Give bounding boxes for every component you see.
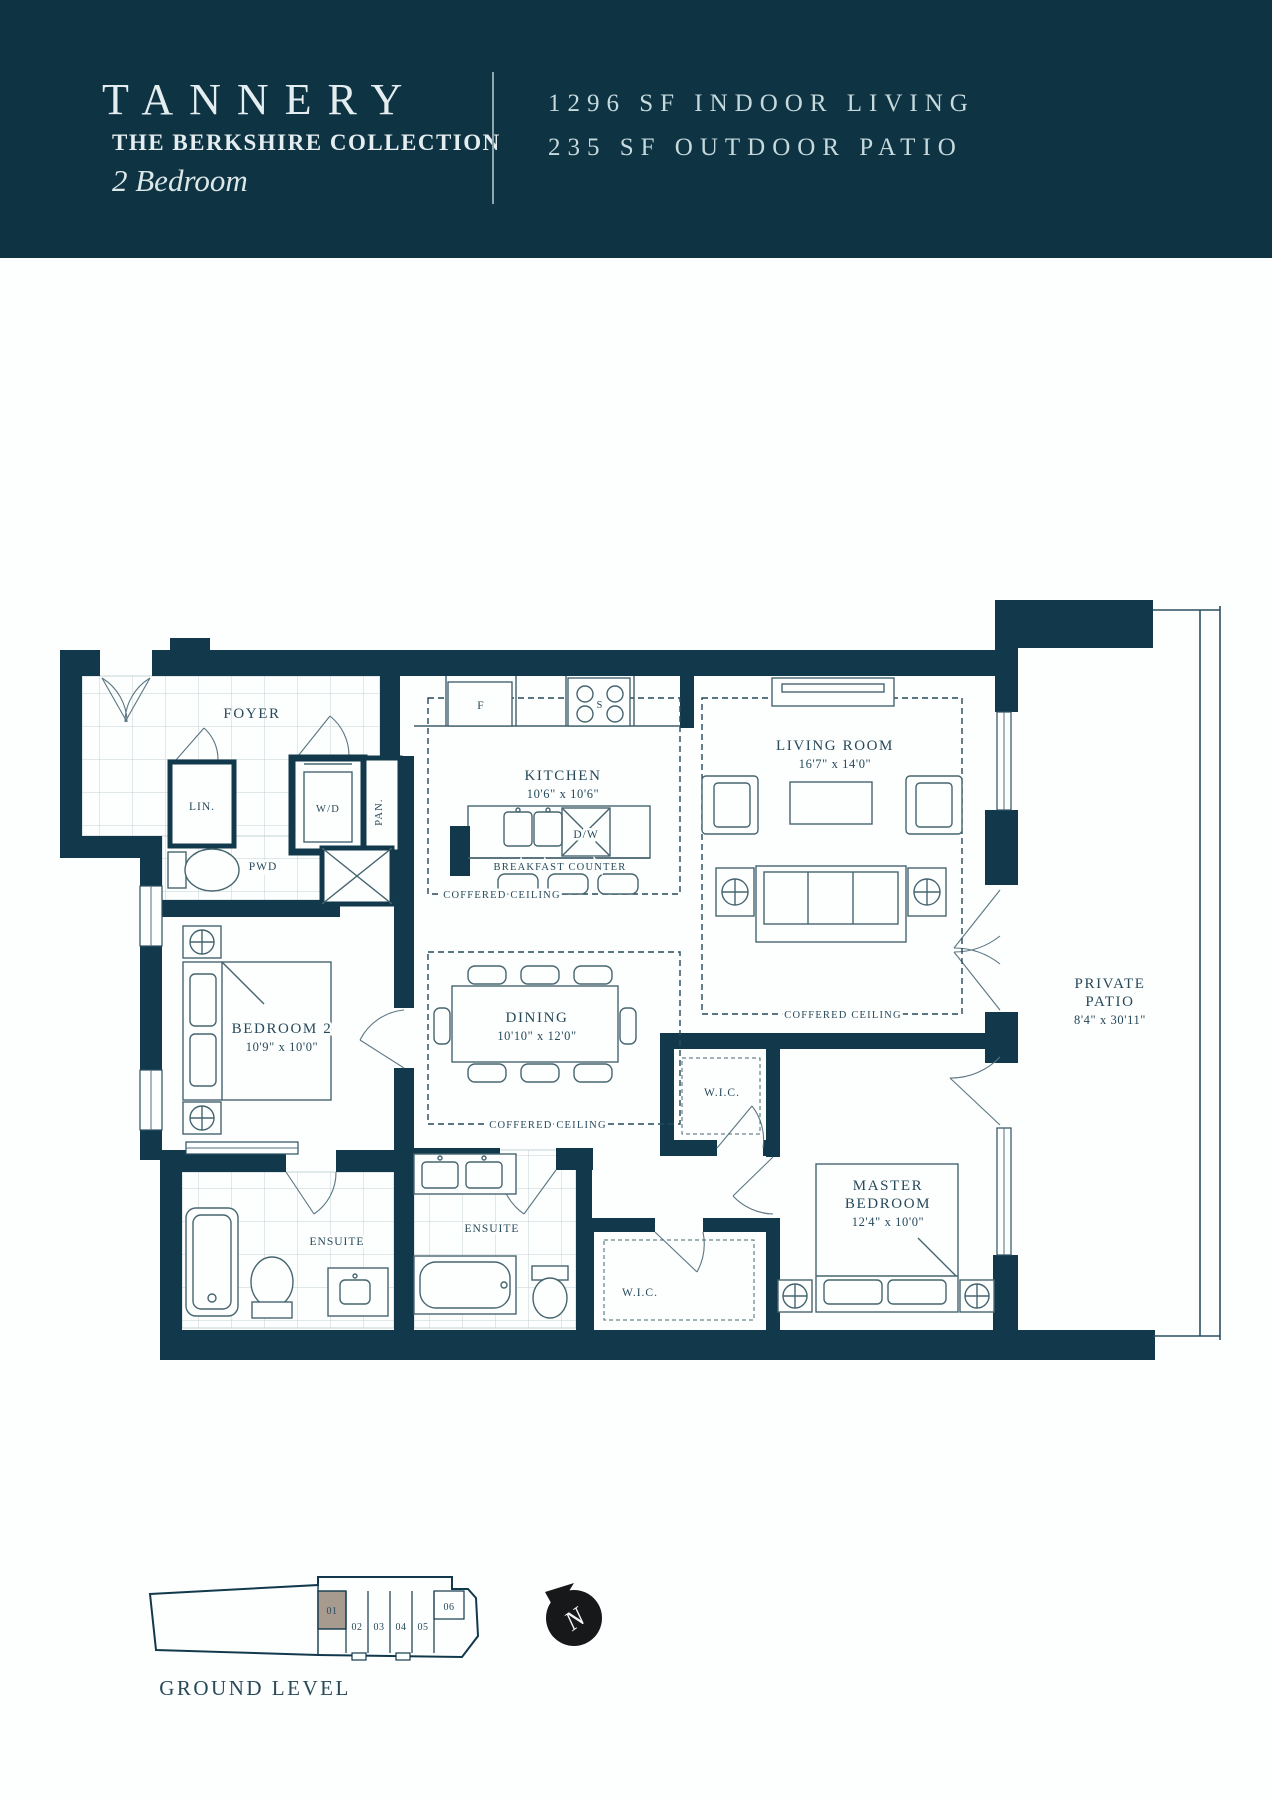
dining-dims: 10'10" x 12'0" <box>497 1029 576 1043</box>
floor-plan: FOYER LIN. W/D PAN. PWD KITCHEN 10'6" x … <box>0 0 1272 1800</box>
keyplan-unit-03-label: 03 <box>374 1622 385 1633</box>
private-patio-label-line2: PATIO <box>1085 994 1134 1010</box>
keyplan-unit-01-label: 01 <box>327 1606 338 1617</box>
keyplan-unit-05-label: 05 <box>418 1622 429 1633</box>
sofa-icon <box>756 866 906 942</box>
coffered-ceiling-label-living: COFFERED CEILING <box>784 1010 902 1021</box>
private-patio-dims: 8'4" x 30'11" <box>1074 1013 1146 1027</box>
side-table-lamp-right-icon <box>908 868 946 916</box>
keyplan-building-outline <box>150 1577 478 1657</box>
master-bedroom-label-line1: MASTER <box>853 1178 923 1194</box>
linen-label: LIN. <box>189 801 215 813</box>
pantry-label: PAN. <box>374 798 385 825</box>
foyer-label: FOYER <box>223 706 280 722</box>
washer-dryer-label: W/D <box>316 804 340 815</box>
stove-label: S <box>596 700 603 711</box>
powder-toilet-icon <box>168 849 239 891</box>
ensuite2-toilet-icon <box>532 1266 568 1318</box>
master-bedroom-label-line2: BEDROOM <box>845 1196 931 1212</box>
wic1-label: W.I.C. <box>704 1087 740 1099</box>
coffered-ceiling-label-dining: COFFERED CEILING <box>489 1120 607 1131</box>
ensuite2-tub-icon <box>414 1256 516 1314</box>
kitchen-dims: 10'6" x 10'6" <box>527 787 600 801</box>
ensuite1-vanity-icon <box>328 1268 388 1316</box>
living-room-dims: 16'7" x 14'0" <box>799 757 872 771</box>
powder-label: PWD <box>249 861 278 873</box>
keyplan: 01 02 03 04 05 06 GROUND LEVEL <box>150 1577 478 1700</box>
ensuite1-shower-icon <box>186 1208 238 1316</box>
dining-label: DINING <box>506 1010 569 1026</box>
north-compass-icon: N <box>545 1583 602 1646</box>
coffee-table-icon <box>790 782 872 824</box>
ensuite2-vanity-icon <box>414 1154 516 1194</box>
dishwasher-label: D/W <box>573 829 598 841</box>
ensuite1-toilet-icon <box>251 1257 293 1318</box>
keyplan-unit-06-label: 06 <box>444 1602 455 1613</box>
armchair-right-icon <box>906 776 962 834</box>
coffered-ceiling-label-kitchen: COFFERED CEILING <box>443 890 561 901</box>
keyplan-unit-02-label: 02 <box>352 1622 363 1633</box>
kitchen-label: KITCHEN <box>524 768 601 784</box>
master-bedroom-dims: 12'4" x 10'0" <box>852 1215 925 1229</box>
private-patio-label-line1: PRIVATE <box>1075 976 1146 992</box>
keyplan-unit-04-label: 04 <box>396 1622 407 1633</box>
patio-railing <box>1153 606 1220 1340</box>
tv-console-icon <box>772 678 894 706</box>
ground-level-label: GROUND LEVEL <box>159 1676 351 1700</box>
bedroom2-label: BEDROOM 2 <box>232 1021 333 1037</box>
floorplan-sheet: TANNERY THE BERKSHIRE COLLECTION 2 Bedro… <box>0 0 1272 1800</box>
breakfast-counter-label: BREAKFAST COUNTER <box>494 862 627 873</box>
armchair-left-icon <box>702 776 758 834</box>
linen-closet-x <box>322 848 392 904</box>
bedroom2-dims: 10'9" x 10'0" <box>246 1040 319 1054</box>
side-table-lamp-left-icon <box>716 868 754 916</box>
ensuite1-label: ENSUITE <box>310 1236 365 1248</box>
ensuite2-label: ENSUITE <box>465 1223 520 1235</box>
living-room-label: LIVING ROOM <box>776 738 894 754</box>
wic2-label: W.I.C. <box>622 1287 658 1299</box>
fridge-label: F <box>477 700 484 712</box>
